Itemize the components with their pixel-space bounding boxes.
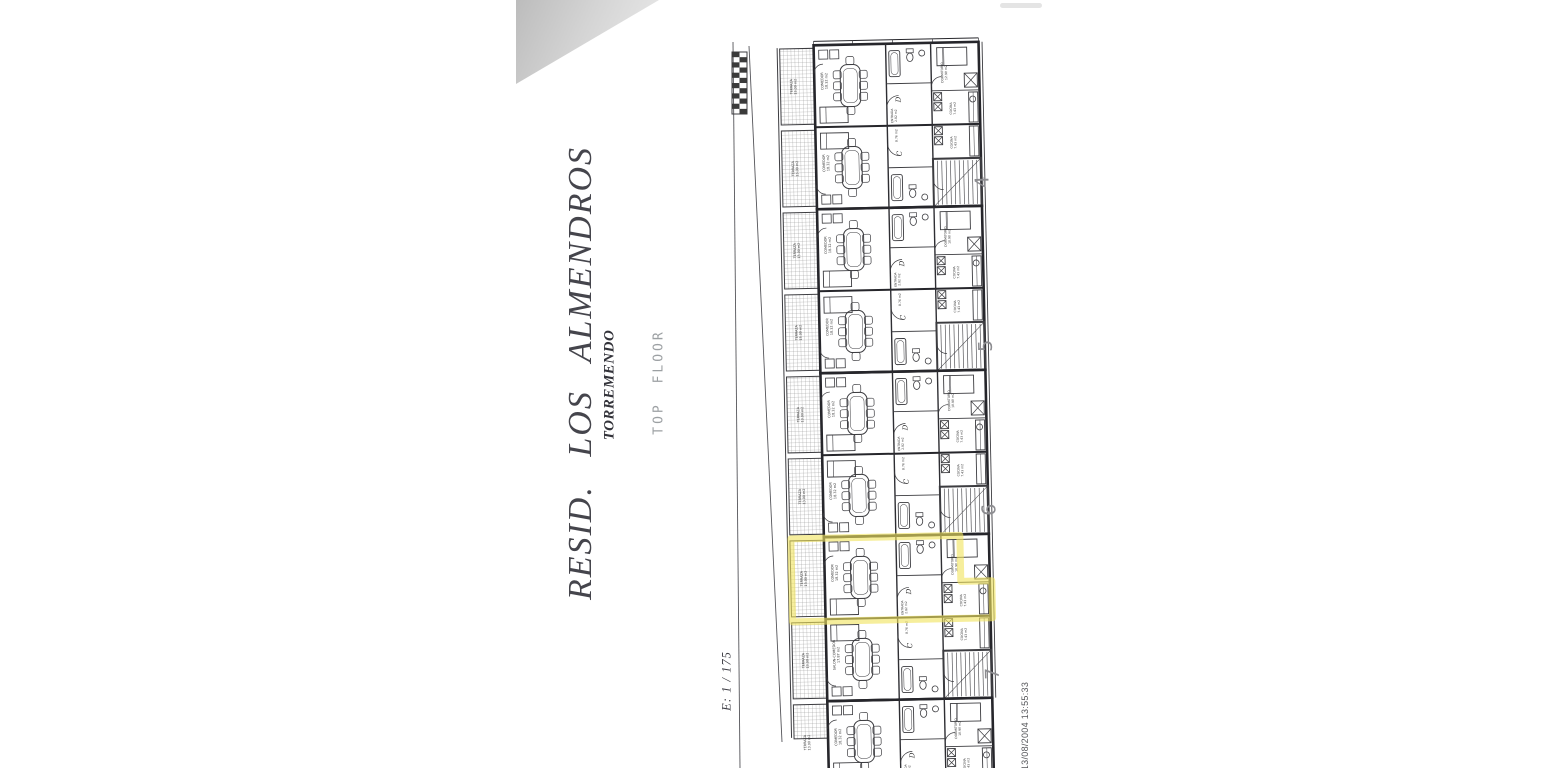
kitchen-label: 7.43 m2 [953,136,957,149]
kitchen-label: 7.43 m2 [960,464,964,477]
terrace-label: 13.00 m2 [807,735,811,751]
floor-plan: TERRAZA13.00 m2TERRAZA13.00 m2COMEDOR18.… [0,0,1560,768]
terrace-label: 13.00 m2 [802,489,806,505]
bedroom-label: 10.90 m2 [958,721,962,736]
scanned-plan-page: RESID. LOS ALMENDROS TORREMENDO TOP FLOO… [0,0,1560,768]
living-room-label: 18.32 m2 [828,237,832,253]
unit-type-letter: D [902,424,910,431]
living-room-label: 18.32 m2 [838,729,842,745]
living-room-label: 18.32 m2 [831,401,835,417]
apartment-module: TERRAZA13.00 m2COMEDOR18.32 m2DENTRADA2.… [793,698,995,768]
apartment-module: TERRAZA13.00 m2TERRAZA13.00 m2COMEDOR18.… [780,42,982,210]
kitchen-label: 7.43 m2 [960,430,964,443]
living-room-label: 18.32 m2 [826,155,830,171]
kitchen-label: 7.43 m2 [964,628,968,641]
site-boundary [733,42,782,768]
terrace-label: 13.00 m2 [805,653,809,669]
terrace-label: 13.00 m2 [793,79,797,95]
apartment-module: TERRAZA13.00 m2TERRAZA13.00 m2COMEDOR18.… [786,370,988,538]
apartment-module: TERRAZA13.00 m2TERRAZA13.00 m2COMEDOR18.… [783,206,985,374]
living-room-label: 18.32 m2 [829,319,833,335]
entry-label: 2.82 m2 [904,601,908,614]
corridor-label: 8.76 m2 [901,457,905,470]
corridor-label: 8.76 m2 [898,293,902,306]
terrace-label: 13.00 m2 [804,571,808,587]
terrace-label: 13.00 m2 [795,161,799,177]
entry-label: 2.82 m2 [897,273,901,286]
living-room-label: 18.32 m2 [835,565,839,581]
kitchen-label: 7.43 m2 [957,300,961,313]
unit-type-letter: D [898,260,906,267]
bedroom-label: 10.90 m2 [947,229,951,244]
unit-type-letter: D [908,752,916,759]
unit-type-letter: D [905,588,913,595]
unit-number: 6 [978,503,1000,516]
bedroom-label: 10.90 m2 [951,393,955,408]
corridor-label: 8.76 m2 [894,129,898,142]
entry-label: 2.82 m2 [901,437,905,450]
unit-number: 4 [971,176,993,189]
graphic-scale-bar [732,52,747,114]
unit-type-letter: D [895,96,903,103]
kitchen-label: 7.43 m2 [956,266,960,279]
terrace-label: 13.00 m2 [799,325,803,341]
building-strip: TERRAZA13.00 m2TERRAZA13.00 m2COMEDOR18.… [777,38,1008,768]
living-room-label: 18.32 m2 [824,73,828,89]
kitchen-label: 7.43 m2 [966,758,970,768]
living-room-label: 17.87 m2 [836,647,840,663]
entry-label: 2.82 m2 [894,109,898,122]
kitchen-label: 7.43 m2 [963,594,967,607]
kitchen-label: 7.43 m2 [953,102,957,115]
terrace-label: 13.00 m2 [800,407,804,423]
living-room-label: 18.32 m2 [833,483,837,499]
terrace-label: 13.00 m2 [797,243,801,259]
unit-number: 7 [982,667,1004,680]
bedroom-label: 12.90 m2 [944,65,948,80]
unit-number: 5 [975,339,997,352]
